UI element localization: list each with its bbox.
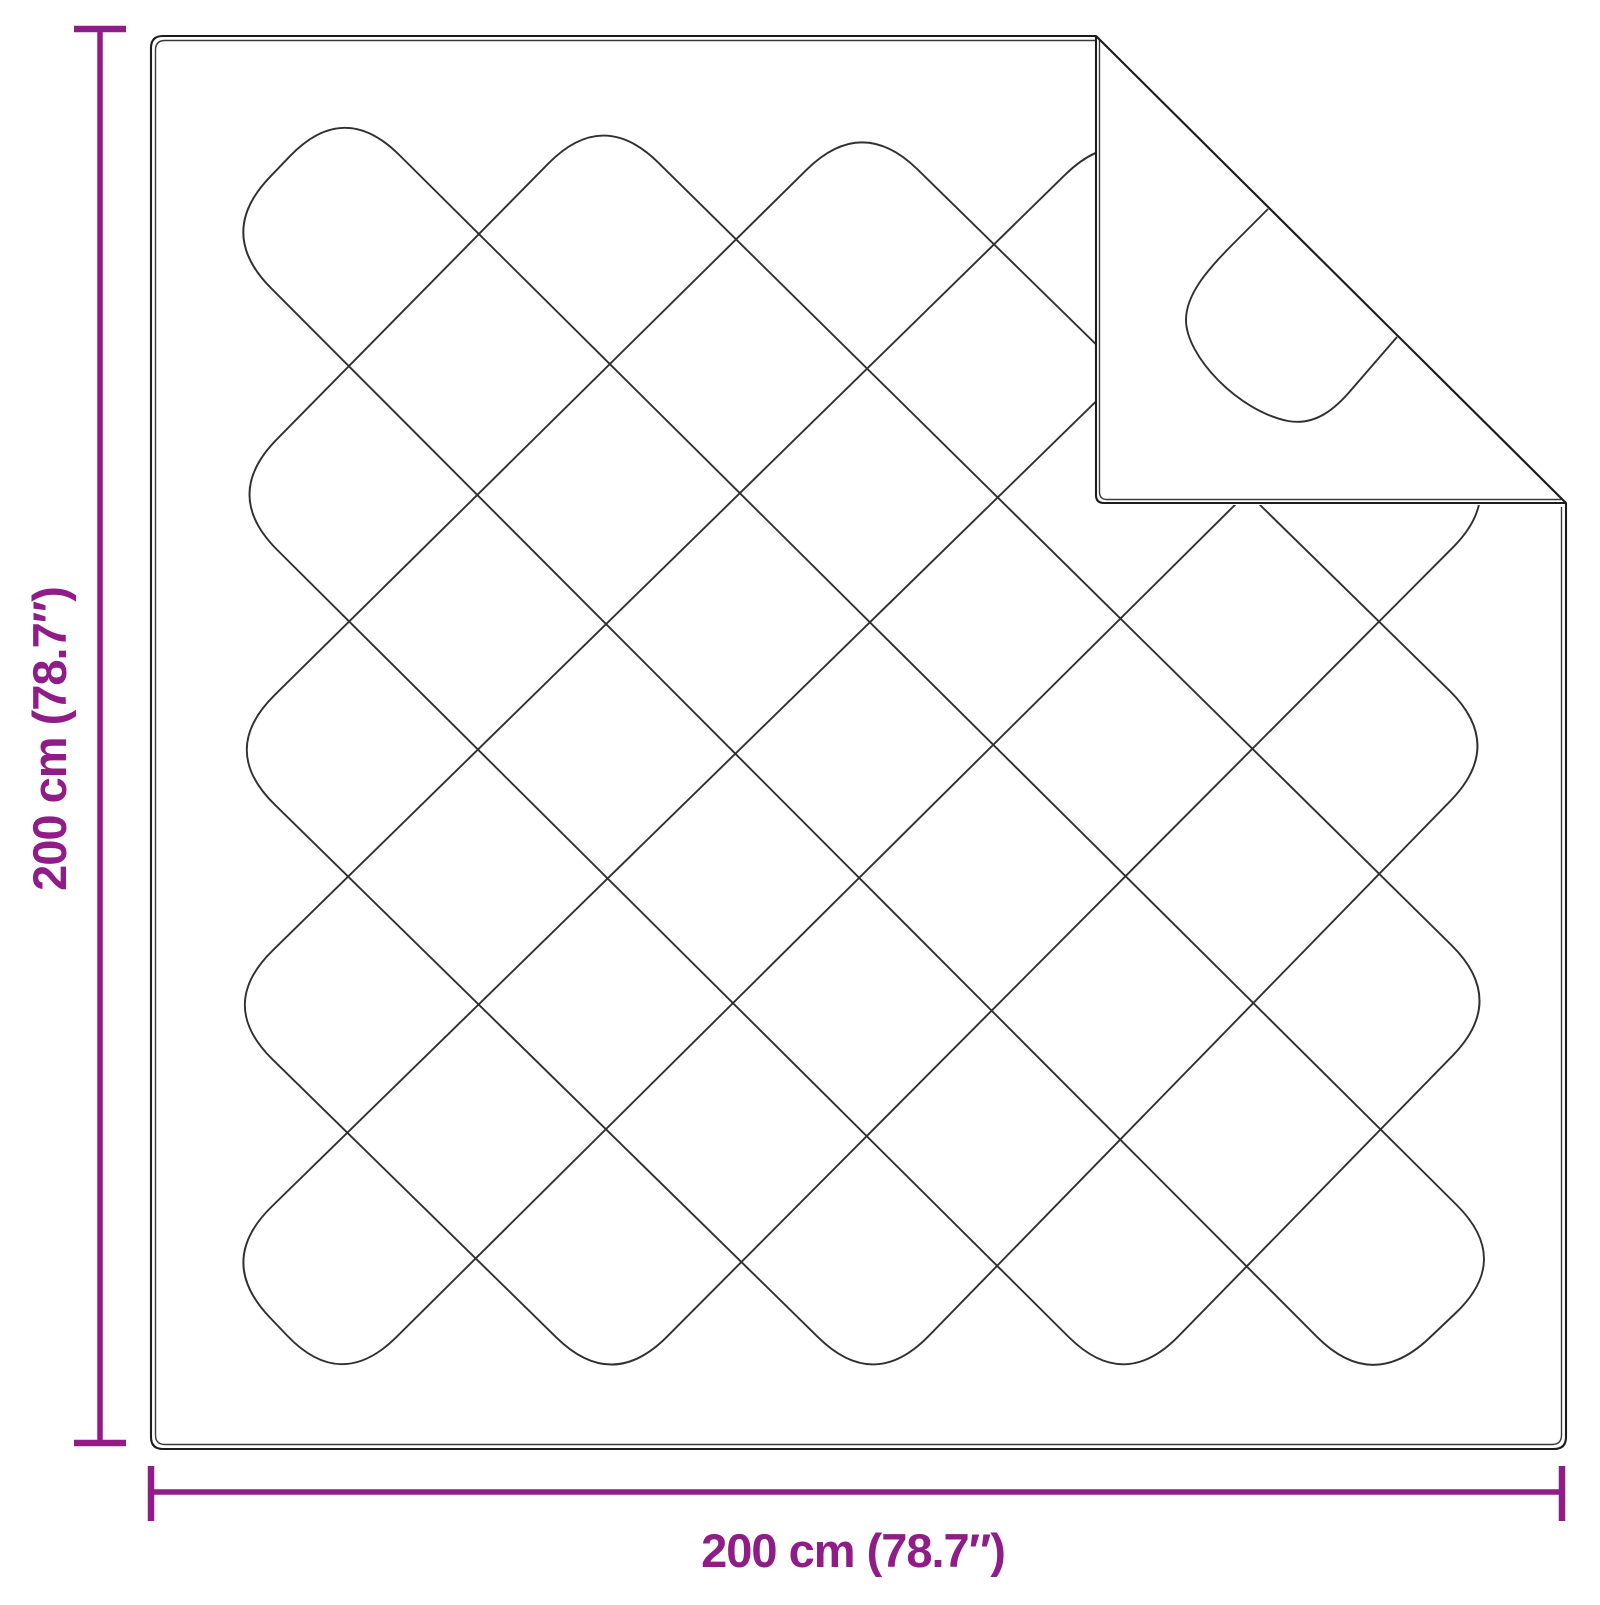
svg-text:200 cm (78.7″): 200 cm (78.7″) [23,587,76,891]
svg-text:200 cm (78.7″): 200 cm (78.7″) [701,1524,1005,1577]
